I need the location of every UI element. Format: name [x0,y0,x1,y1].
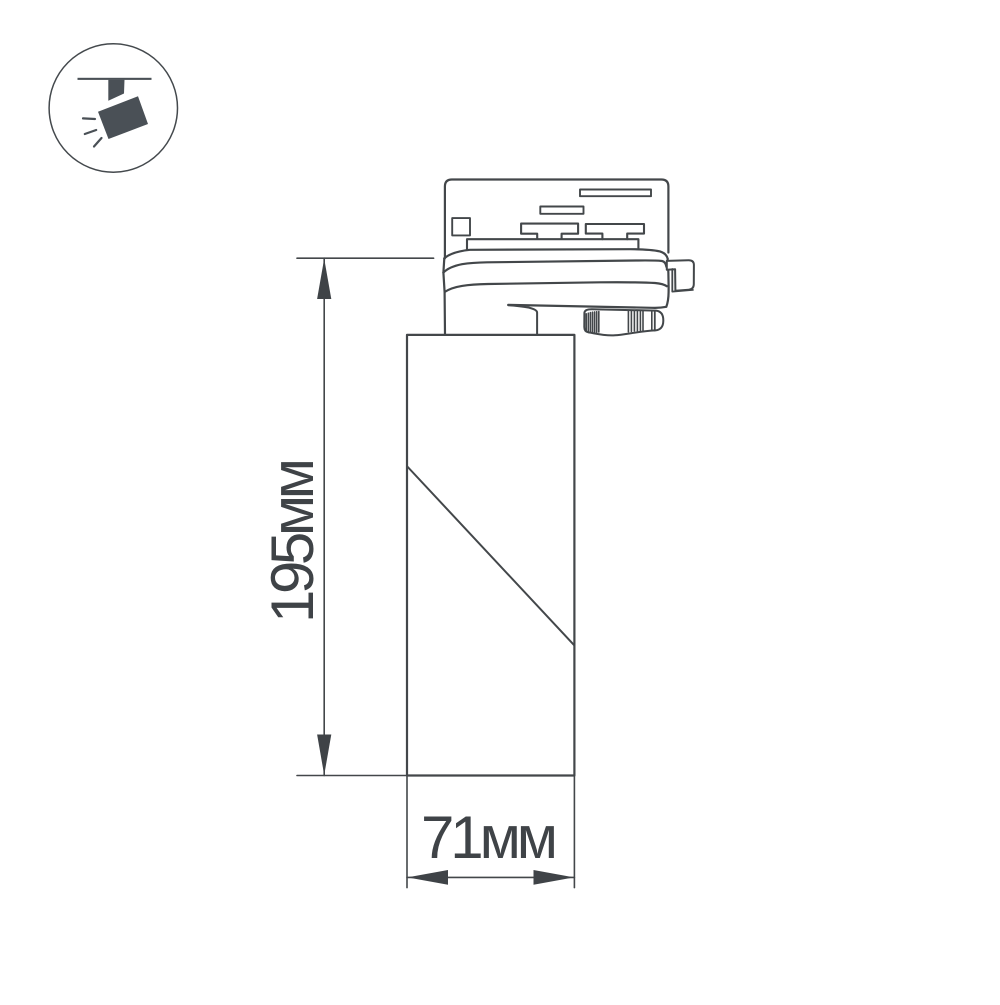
svg-text:195мм: 195мм [259,458,326,623]
svg-text:71мм: 71мм [421,804,558,871]
